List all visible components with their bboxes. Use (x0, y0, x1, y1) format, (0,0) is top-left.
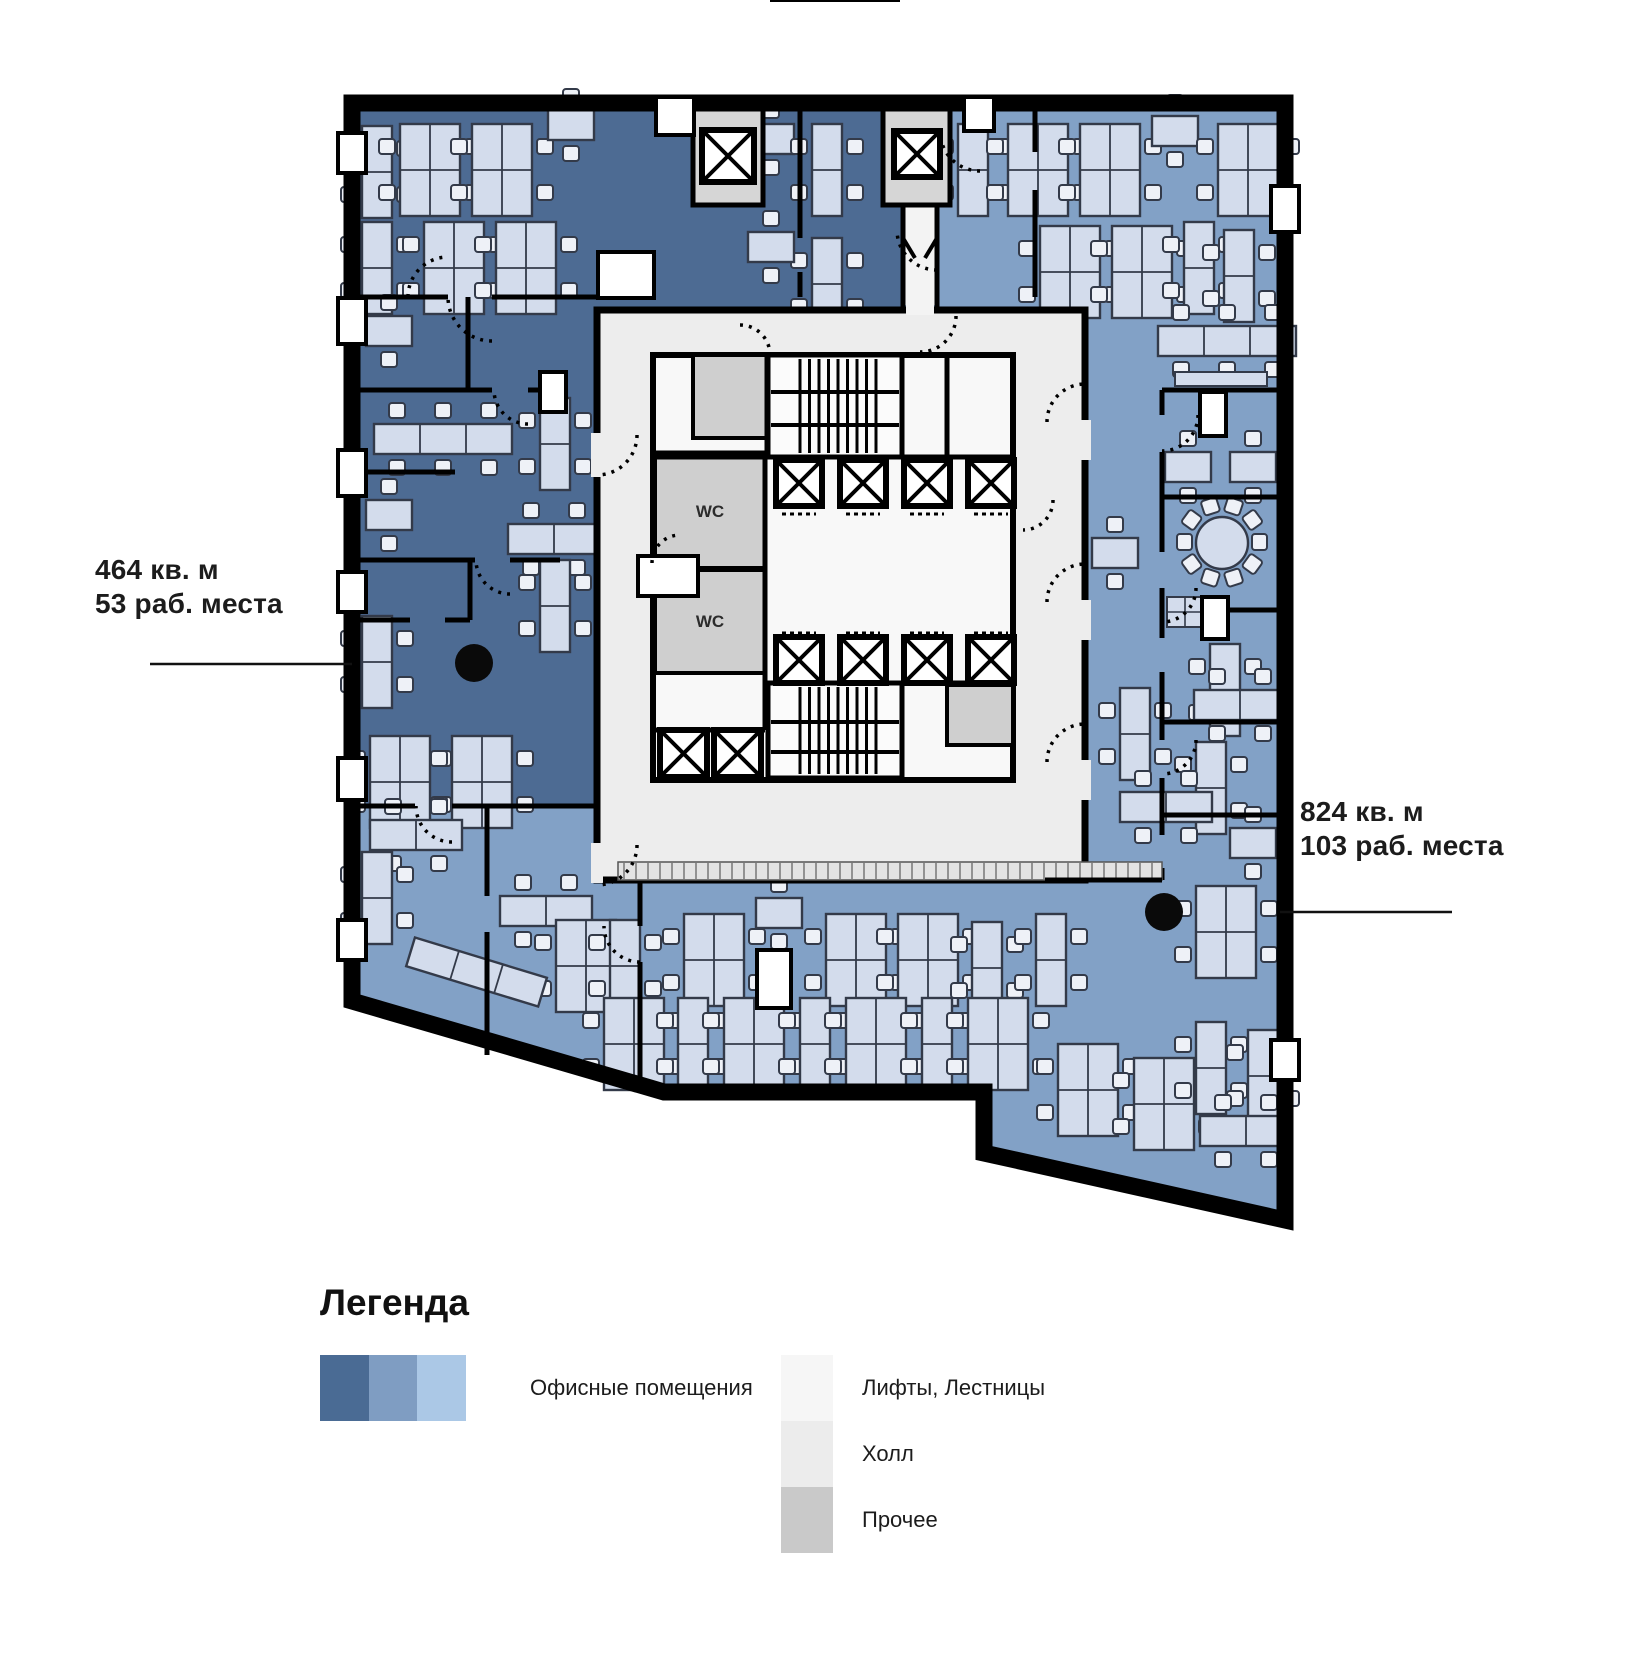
office-swatch-light (417, 1355, 466, 1421)
annotation-right-seats: 103 раб. места (1300, 829, 1504, 863)
legend-swatch-hall (781, 1421, 833, 1487)
wc-top-label: WC (696, 502, 724, 521)
legend-title: Легенда (320, 1282, 469, 1324)
floor-plan-canvas: WCWC 464 кв. м 53 раб. места 824 кв. м 1… (0, 0, 1637, 1653)
legend-office-swatches (320, 1355, 466, 1421)
annotation-right-area: 824 кв. м (1300, 795, 1504, 829)
annotation-left: 464 кв. м 53 раб. места (95, 553, 283, 621)
legend-label-hall: Холл (862, 1421, 914, 1487)
legend-label-lifts: Лифты, Лестницы (862, 1355, 1045, 1421)
annotation-right: 824 кв. м 103 раб. места (1300, 795, 1504, 863)
office-swatch-medium (369, 1355, 418, 1421)
legend-office-label: Офисные помещения (530, 1355, 753, 1421)
annotation-left-area: 464 кв. м (95, 553, 283, 587)
legend-swatch-misc (781, 1487, 833, 1553)
office-swatch-dark (320, 1355, 369, 1421)
legend-label-misc: Прочее (862, 1487, 938, 1553)
wc-bottom-label: WC (696, 612, 724, 631)
annotation-left-seats: 53 раб. места (95, 587, 283, 621)
legend-swatch-lifts (781, 1355, 833, 1421)
